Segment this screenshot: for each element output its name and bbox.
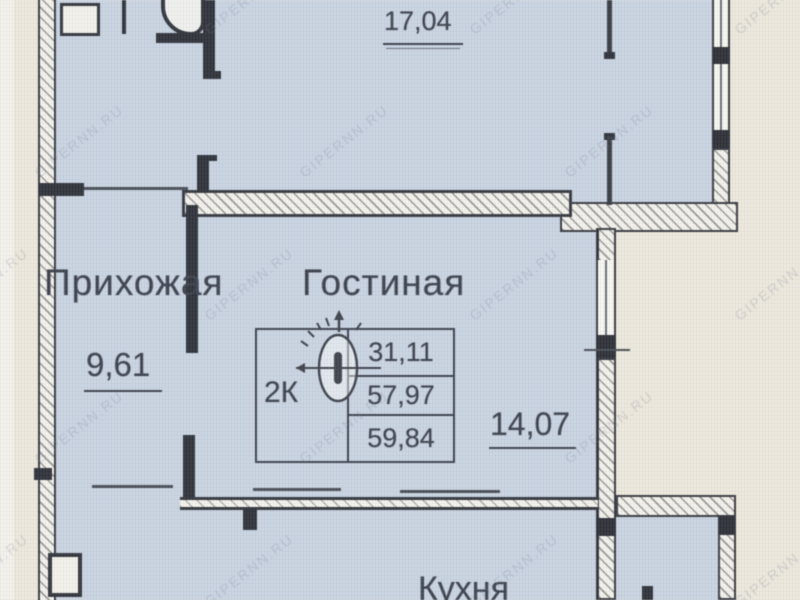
floorplan-photo: 17,04 Прихожая 9,61 Гостиная 14,07 Кухня… — [0, 0, 800, 600]
watermark-text: GIPERNN.RU — [732, 530, 800, 600]
partition-cap — [604, 133, 615, 140]
hallway-label: Прихожая — [44, 262, 223, 304]
window-top-room-2 — [712, 64, 730, 130]
pilaster-cap — [197, 155, 217, 161]
room-fill-bottom-right — [616, 515, 718, 600]
opening-line-hallway-bottom — [92, 485, 173, 488]
wall-exterior-right-lower — [596, 358, 616, 600]
wall-bathroom-right-foot — [203, 71, 221, 79]
wall-pier — [596, 518, 616, 536]
kitchen-label: Кухня — [418, 570, 509, 600]
top-room-area-underline2 — [386, 48, 460, 49]
window-living — [596, 260, 616, 337]
wall-top-rooms-south — [182, 190, 572, 217]
sink-fixture — [60, 3, 100, 36]
wall-exterior-bottom-step — [616, 495, 736, 517]
wall-stub-hallway-top — [38, 183, 84, 196]
wall-bathroom-right — [203, 0, 215, 78]
hallway-area: 9,61 — [86, 346, 150, 384]
stamp-type-label: 2К — [264, 376, 298, 410]
pier-tick — [584, 349, 630, 351]
stamp-total-with-balcony: 59,84 — [350, 416, 452, 460]
stamp-living-area: 31,11 — [350, 330, 452, 374]
wall-exterior-right-mid — [596, 228, 616, 262]
balcony-door-pier — [596, 335, 616, 360]
wall-stub-left-mid — [34, 468, 52, 480]
opening-line-living-kitchen-1 — [253, 488, 341, 491]
wall-pier — [718, 516, 735, 535]
top-room-area: 17,04 — [384, 6, 452, 37]
watermark-text: GIPERNN.RU — [732, 0, 800, 38]
hallway-area-underline — [84, 390, 162, 392]
wall-pier — [712, 130, 730, 148]
wall-top-room-partition-upper — [607, 0, 612, 57]
watermark-text: GIPERNN.RU — [732, 244, 800, 323]
wall-stub-kitchen — [243, 509, 257, 530]
cropped-fixture-mark — [642, 586, 653, 600]
living-label: Гостиная — [302, 262, 465, 304]
bathroom-partition-line — [122, 0, 126, 34]
opening-line-hallway-top — [84, 187, 188, 190]
stamp-total-area: 57,97 — [350, 377, 452, 413]
wall-exterior-step — [560, 202, 738, 232]
wall-pier — [712, 47, 730, 64]
floorplan-drawing: 17,04 Прихожая 9,61 Гостиная 14,07 Кухня… — [0, 0, 800, 600]
living-area-underline — [489, 447, 576, 449]
paper-edge-left — [0, 0, 14, 600]
living-area: 14,07 — [490, 406, 570, 443]
opening-line-living-kitchen-2 — [400, 490, 500, 493]
top-room-area-underline — [383, 43, 463, 45]
partition-cap — [604, 52, 615, 59]
window-top-room-1 — [712, 0, 730, 47]
wall-top-room-partition-lower — [607, 133, 612, 205]
vent-shaft — [48, 553, 82, 597]
